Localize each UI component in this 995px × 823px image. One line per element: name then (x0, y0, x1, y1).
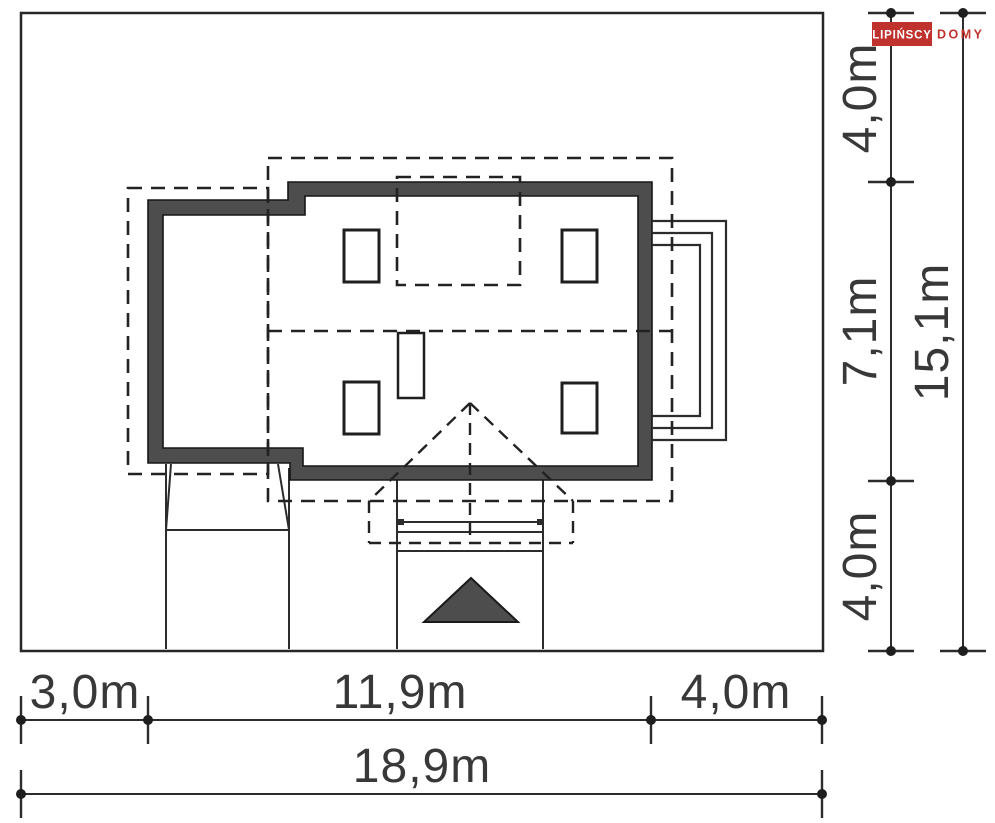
dim-label-right-top: 4,0m (834, 43, 887, 154)
dim-label-right-total: 15,1m (906, 263, 959, 401)
site-plan-page: 4,0m 7,1m 4,0m 15,1m 3,0m 11,9m 4,0m 18,… (0, 0, 995, 823)
dim-label-bottom-left: 3,0m (30, 666, 141, 719)
logo-secondary-text: DOMY (937, 28, 985, 42)
porch-post-left (398, 519, 404, 525)
dim-label-right-bottom: 4,0m (834, 511, 887, 622)
logo-primary-text: LIPIŃSCY (872, 29, 931, 42)
chimney-3 (344, 382, 379, 434)
dim-label-bottom-middle: 11,9m (333, 666, 468, 719)
chimney-5 (398, 333, 424, 398)
porch-post-right (537, 519, 543, 525)
site-plan-drawing: 4,0m 7,1m 4,0m 15,1m 3,0m 11,9m 4,0m 18,… (0, 0, 995, 823)
chimney-1 (344, 230, 379, 282)
chimney-4 (562, 383, 597, 433)
logo: LIPIŃSCY DOMY (872, 22, 985, 46)
chimney-2 (562, 230, 597, 282)
dim-label-bottom-right: 4,0m (681, 666, 792, 719)
dim-label-bottom-total: 18,9m (353, 740, 491, 793)
dim-label-right-middle: 7,1m (834, 276, 887, 387)
